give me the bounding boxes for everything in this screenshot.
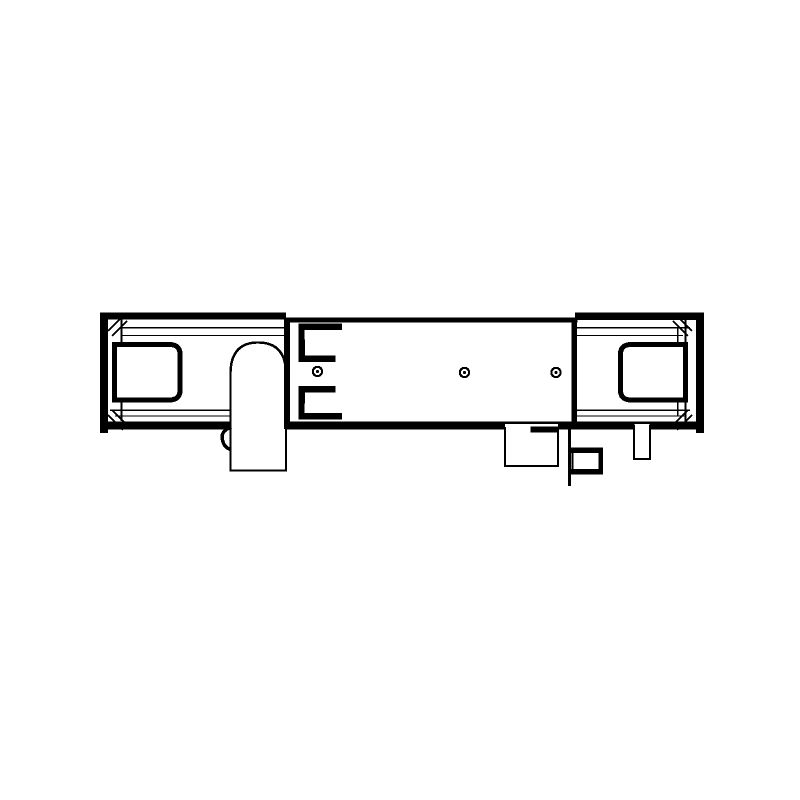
- screw-hole-left-dot: [316, 370, 319, 373]
- plate-top-edge: [284, 319, 578, 323]
- end-cap-left: [100, 313, 108, 434]
- connector-box-top-edge: [570, 448, 604, 454]
- handle-lever: [231, 343, 287, 471]
- connector-box-bottom-edge: [570, 469, 604, 475]
- connector-box-right-edge: [599, 448, 604, 475]
- connector-box: [573, 451, 601, 472]
- screw-hole-right-dot: [555, 371, 558, 374]
- lower-clip-notch: [305, 404, 310, 414]
- technical-drawing: [0, 0, 800, 800]
- drain-stub-fill: [634, 424, 650, 459]
- mounting-plate: [287, 321, 576, 425]
- drawing-page: [0, 0, 800, 800]
- right-window: [621, 345, 686, 401]
- plate-right-edge: [572, 319, 577, 430]
- right-top-rail-bar: [575, 313, 704, 321]
- upper-clip-notch: [305, 330, 310, 340]
- screw-hole-center-dot: [463, 371, 466, 374]
- outlet-box-top-edge: [531, 427, 559, 433]
- plate-left-edge: [284, 319, 290, 430]
- left-window: [115, 345, 181, 401]
- end-cap-right: [696, 313, 704, 434]
- left-top-rail-bar: [100, 313, 286, 320]
